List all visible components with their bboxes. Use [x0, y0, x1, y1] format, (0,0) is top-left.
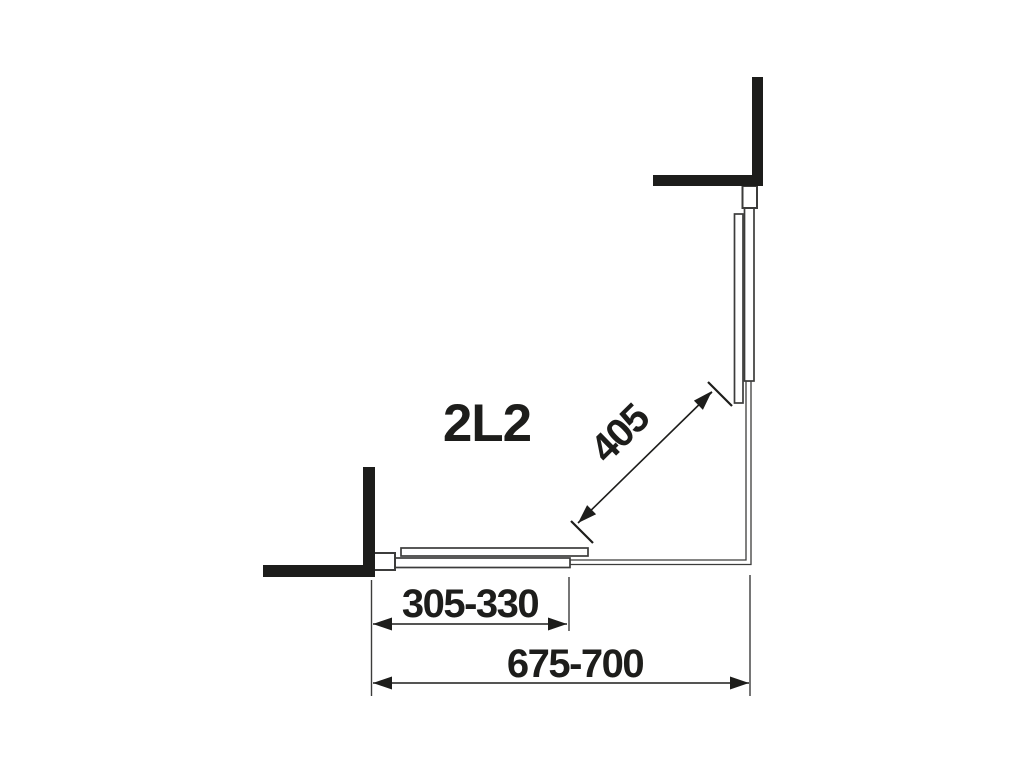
technical-drawing-page: 2L2 405 305-330 675-700: [0, 0, 1024, 768]
glass-panel-vertical-fixed: [745, 208, 755, 381]
dimension-text-overall: 675-700: [507, 642, 644, 686]
dimension-text-segment: 305-330: [402, 582, 539, 626]
model-label: 2L2: [443, 394, 531, 453]
glass-panel-horizontal-sliding: [401, 548, 588, 556]
shower-enclosure-plan-drawing: 2L2 405 305-330 675-700: [0, 0, 1024, 768]
corner-frame-profile: [570, 381, 751, 565]
wall-top-right-horizontal: [653, 175, 763, 186]
dimension-tick-lower: [571, 521, 593, 543]
dimension-text-diagonal: 405: [582, 395, 658, 471]
arrowhead-segment-left: [373, 618, 392, 631]
dimension-line-diagonal: [578, 392, 712, 523]
wall-left-horizontal: [263, 565, 375, 577]
glass-panel-horizontal-fixed: [395, 558, 570, 568]
wall-top-right-vertical: [752, 77, 763, 186]
wall-profile-top: [743, 186, 758, 208]
dimension-tick-upper: [708, 382, 732, 406]
wall-profile-left: [374, 553, 395, 570]
arrowhead-overall-right: [730, 677, 749, 690]
arrowhead-segment-right: [548, 618, 567, 631]
glass-panel-vertical-sliding: [735, 214, 744, 403]
arrowhead-overall-left: [373, 677, 392, 690]
wall-left-vertical: [363, 467, 375, 577]
